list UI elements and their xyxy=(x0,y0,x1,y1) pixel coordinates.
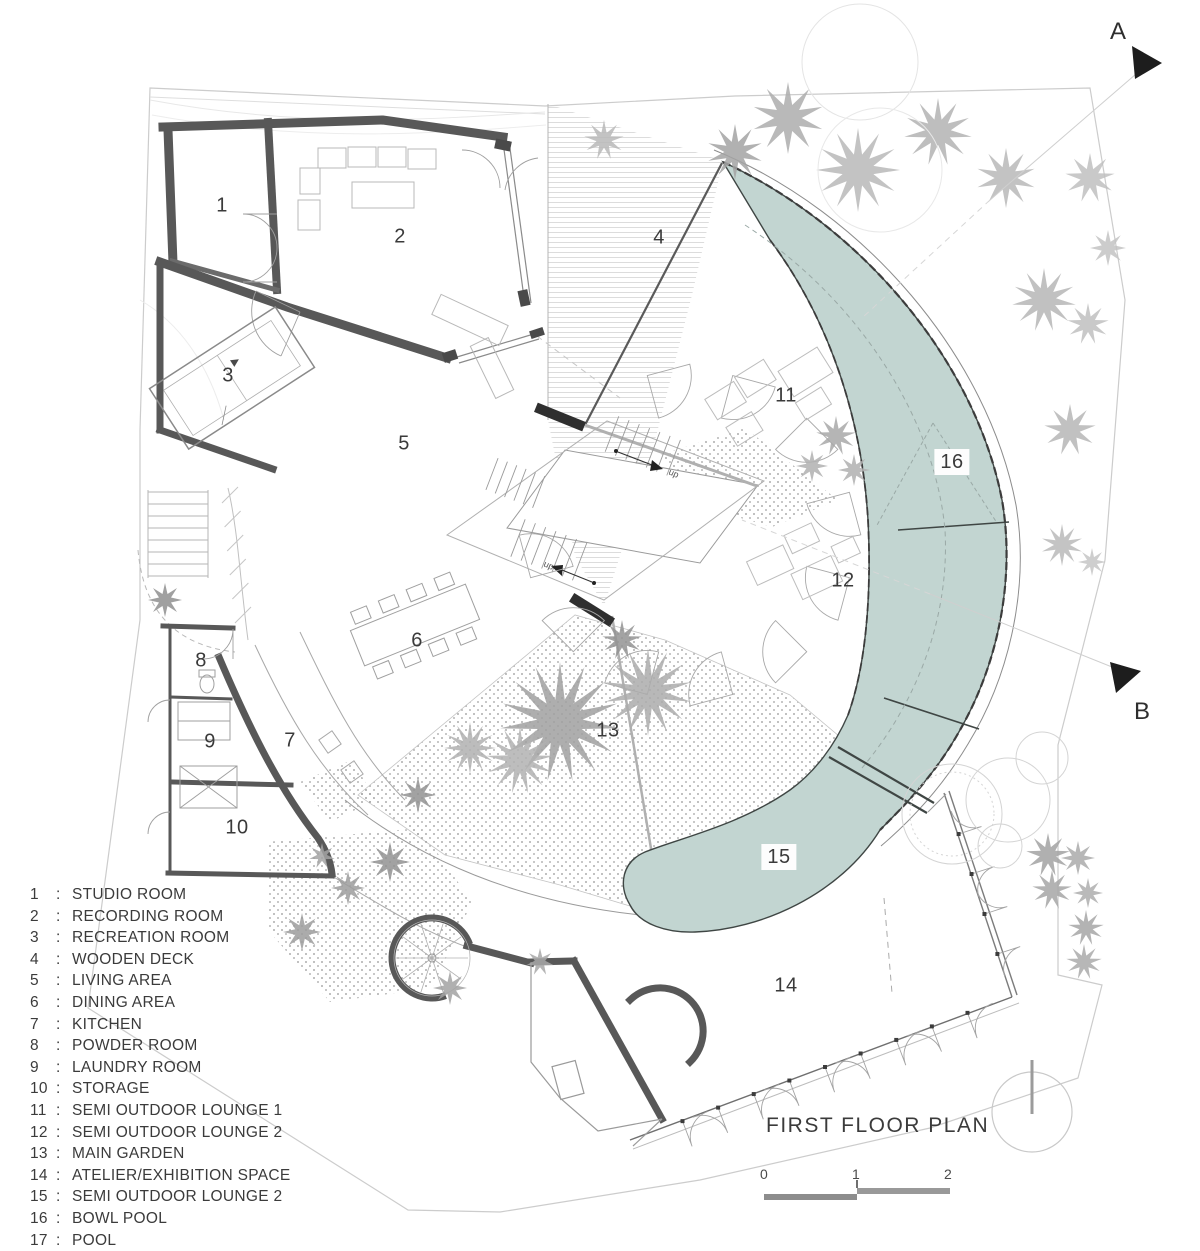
tree-icon xyxy=(754,82,822,154)
tree-icon xyxy=(816,416,855,455)
legend-item: 17:POOL xyxy=(30,1230,291,1251)
legend-item: 3:RECREATION ROOM xyxy=(30,927,291,949)
legend-item: 2:RECORDING ROOM xyxy=(30,906,291,928)
tree-icon xyxy=(400,777,436,813)
tree-icon xyxy=(1032,870,1071,909)
legend-item: 8:POWDER ROOM xyxy=(30,1035,291,1057)
tree-icon xyxy=(1012,268,1075,331)
atelier-store xyxy=(531,962,662,1131)
room-number-label: 8 xyxy=(195,650,207,673)
tree-icon xyxy=(1073,878,1103,908)
tree-icon xyxy=(796,450,828,482)
legend-item: 7:KITCHEN xyxy=(30,1014,291,1036)
door-leaf-icon xyxy=(951,811,981,834)
scale-bar-segment-1 xyxy=(764,1194,857,1200)
tree-icon xyxy=(148,583,182,617)
room-number-label: 2 xyxy=(394,226,406,249)
floor-plan-canvas: up up xyxy=(0,0,1200,1251)
scale-bar-segment-2 xyxy=(857,1188,950,1194)
legend-item: 14:ATELIER/EXHIBITION SPACE xyxy=(30,1165,291,1187)
legend-item: 1:STUDIO ROOM xyxy=(30,884,291,906)
room-number-label: 11 xyxy=(775,385,797,408)
tree-icon xyxy=(978,148,1035,208)
section-marker-b-icon xyxy=(1110,662,1141,693)
legend-item: 13:MAIN GARDEN xyxy=(30,1143,291,1165)
tree-icon xyxy=(1090,230,1126,266)
room-number-label: 7 xyxy=(284,730,296,753)
tree-icon xyxy=(904,98,971,165)
scale-tick-label: 1 xyxy=(852,1166,860,1182)
tree-icon xyxy=(1061,841,1095,875)
exterior-stair xyxy=(148,490,208,578)
furniture-recording-room xyxy=(298,147,514,398)
legend-item: 9:LAUNDRY ROOM xyxy=(30,1057,291,1079)
room-number-label: 5 xyxy=(398,433,410,456)
tree-icon xyxy=(1042,524,1082,566)
legend-item: 6:DINING AREA xyxy=(30,992,291,1014)
lounge2-furniture xyxy=(743,509,868,614)
legend-item: 4:WOODEN DECK xyxy=(30,949,291,971)
room-number-label: 16 xyxy=(934,449,969,475)
section-marker-a-icon xyxy=(1132,46,1162,79)
tree-icon xyxy=(1078,548,1106,576)
tree-icon xyxy=(1066,944,1101,979)
section-label-b: B xyxy=(1134,698,1151,726)
room-number-label: 15 xyxy=(761,844,796,870)
legend-item: 15:SEMI OUTDOOR LOUNGE 2 xyxy=(30,1186,291,1208)
plan-title: FIRST FLOOR PLAN xyxy=(766,1114,989,1138)
legend-item: 16:BOWL POOL xyxy=(30,1208,291,1230)
tree-icon xyxy=(433,971,467,1005)
tree-icon xyxy=(838,454,870,486)
scale-tick-label: 0 xyxy=(760,1166,768,1182)
legend-item: 5:LIVING AREA xyxy=(30,970,291,992)
tree-icon xyxy=(816,128,900,212)
tree-icon xyxy=(1067,303,1108,344)
scale-tick-label: 2 xyxy=(944,1166,952,1182)
door-leaf-icon xyxy=(977,891,1007,914)
room-number-label: 12 xyxy=(831,570,854,593)
tree-icon xyxy=(1026,833,1069,876)
scale-bar: 012 xyxy=(760,1166,980,1210)
dining-set xyxy=(344,568,486,681)
tree-icon xyxy=(331,871,365,905)
room-number-label: 6 xyxy=(411,630,423,653)
tree-icon xyxy=(370,842,410,882)
tree-icon xyxy=(1068,910,1103,945)
legend-item: 10:STORAGE xyxy=(30,1078,291,1100)
legend-item: 11:SEMI OUTDOOR LOUNGE 1 xyxy=(30,1100,291,1122)
room-number-label: 9 xyxy=(204,731,216,754)
legend-item: 12:SEMI OUTDOOR LOUNGE 2 xyxy=(30,1122,291,1144)
room-number-label: 14 xyxy=(774,975,797,998)
north-indicator xyxy=(992,1060,1072,1152)
section-label-a: A xyxy=(1110,18,1127,46)
room-number-label: 13 xyxy=(596,720,619,743)
room-number-label: 3 xyxy=(222,365,234,388)
tree-icon xyxy=(1044,404,1095,454)
legend: 1:STUDIO ROOM2:RECORDING ROOM3:RECREATIO… xyxy=(30,884,291,1251)
window-jambs xyxy=(442,138,545,362)
room-number-label: 10 xyxy=(225,817,248,840)
room-number-label: 4 xyxy=(653,227,665,250)
room-number-label: 1 xyxy=(216,195,228,218)
door-leaf-icon xyxy=(763,621,807,683)
